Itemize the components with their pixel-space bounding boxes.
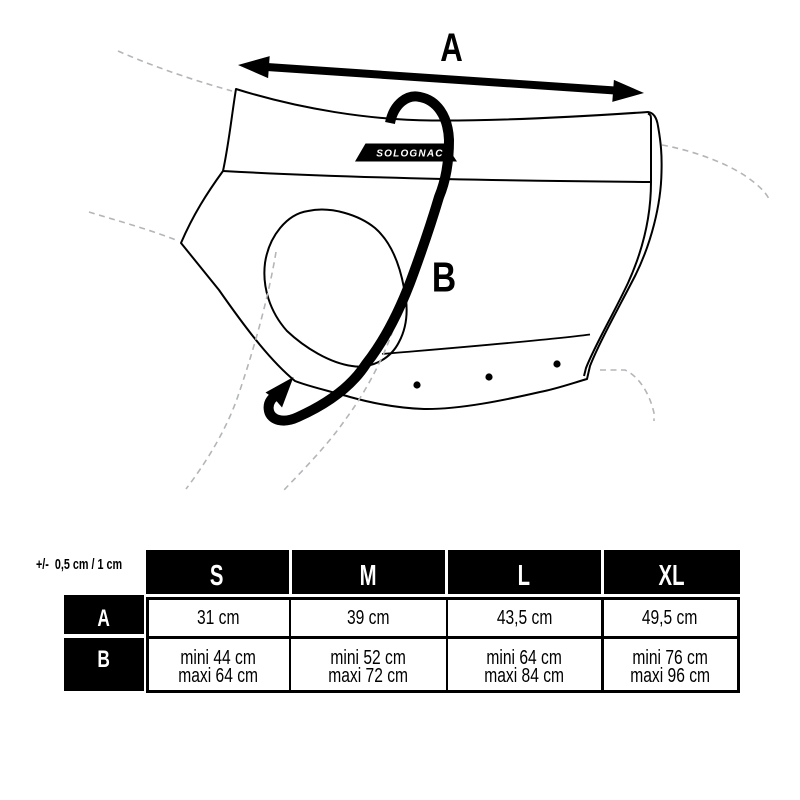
svg-text:SOLOGNAC: SOLOGNAC xyxy=(376,149,443,160)
svg-text:B: B xyxy=(432,255,456,301)
svg-text:A: A xyxy=(440,25,463,70)
